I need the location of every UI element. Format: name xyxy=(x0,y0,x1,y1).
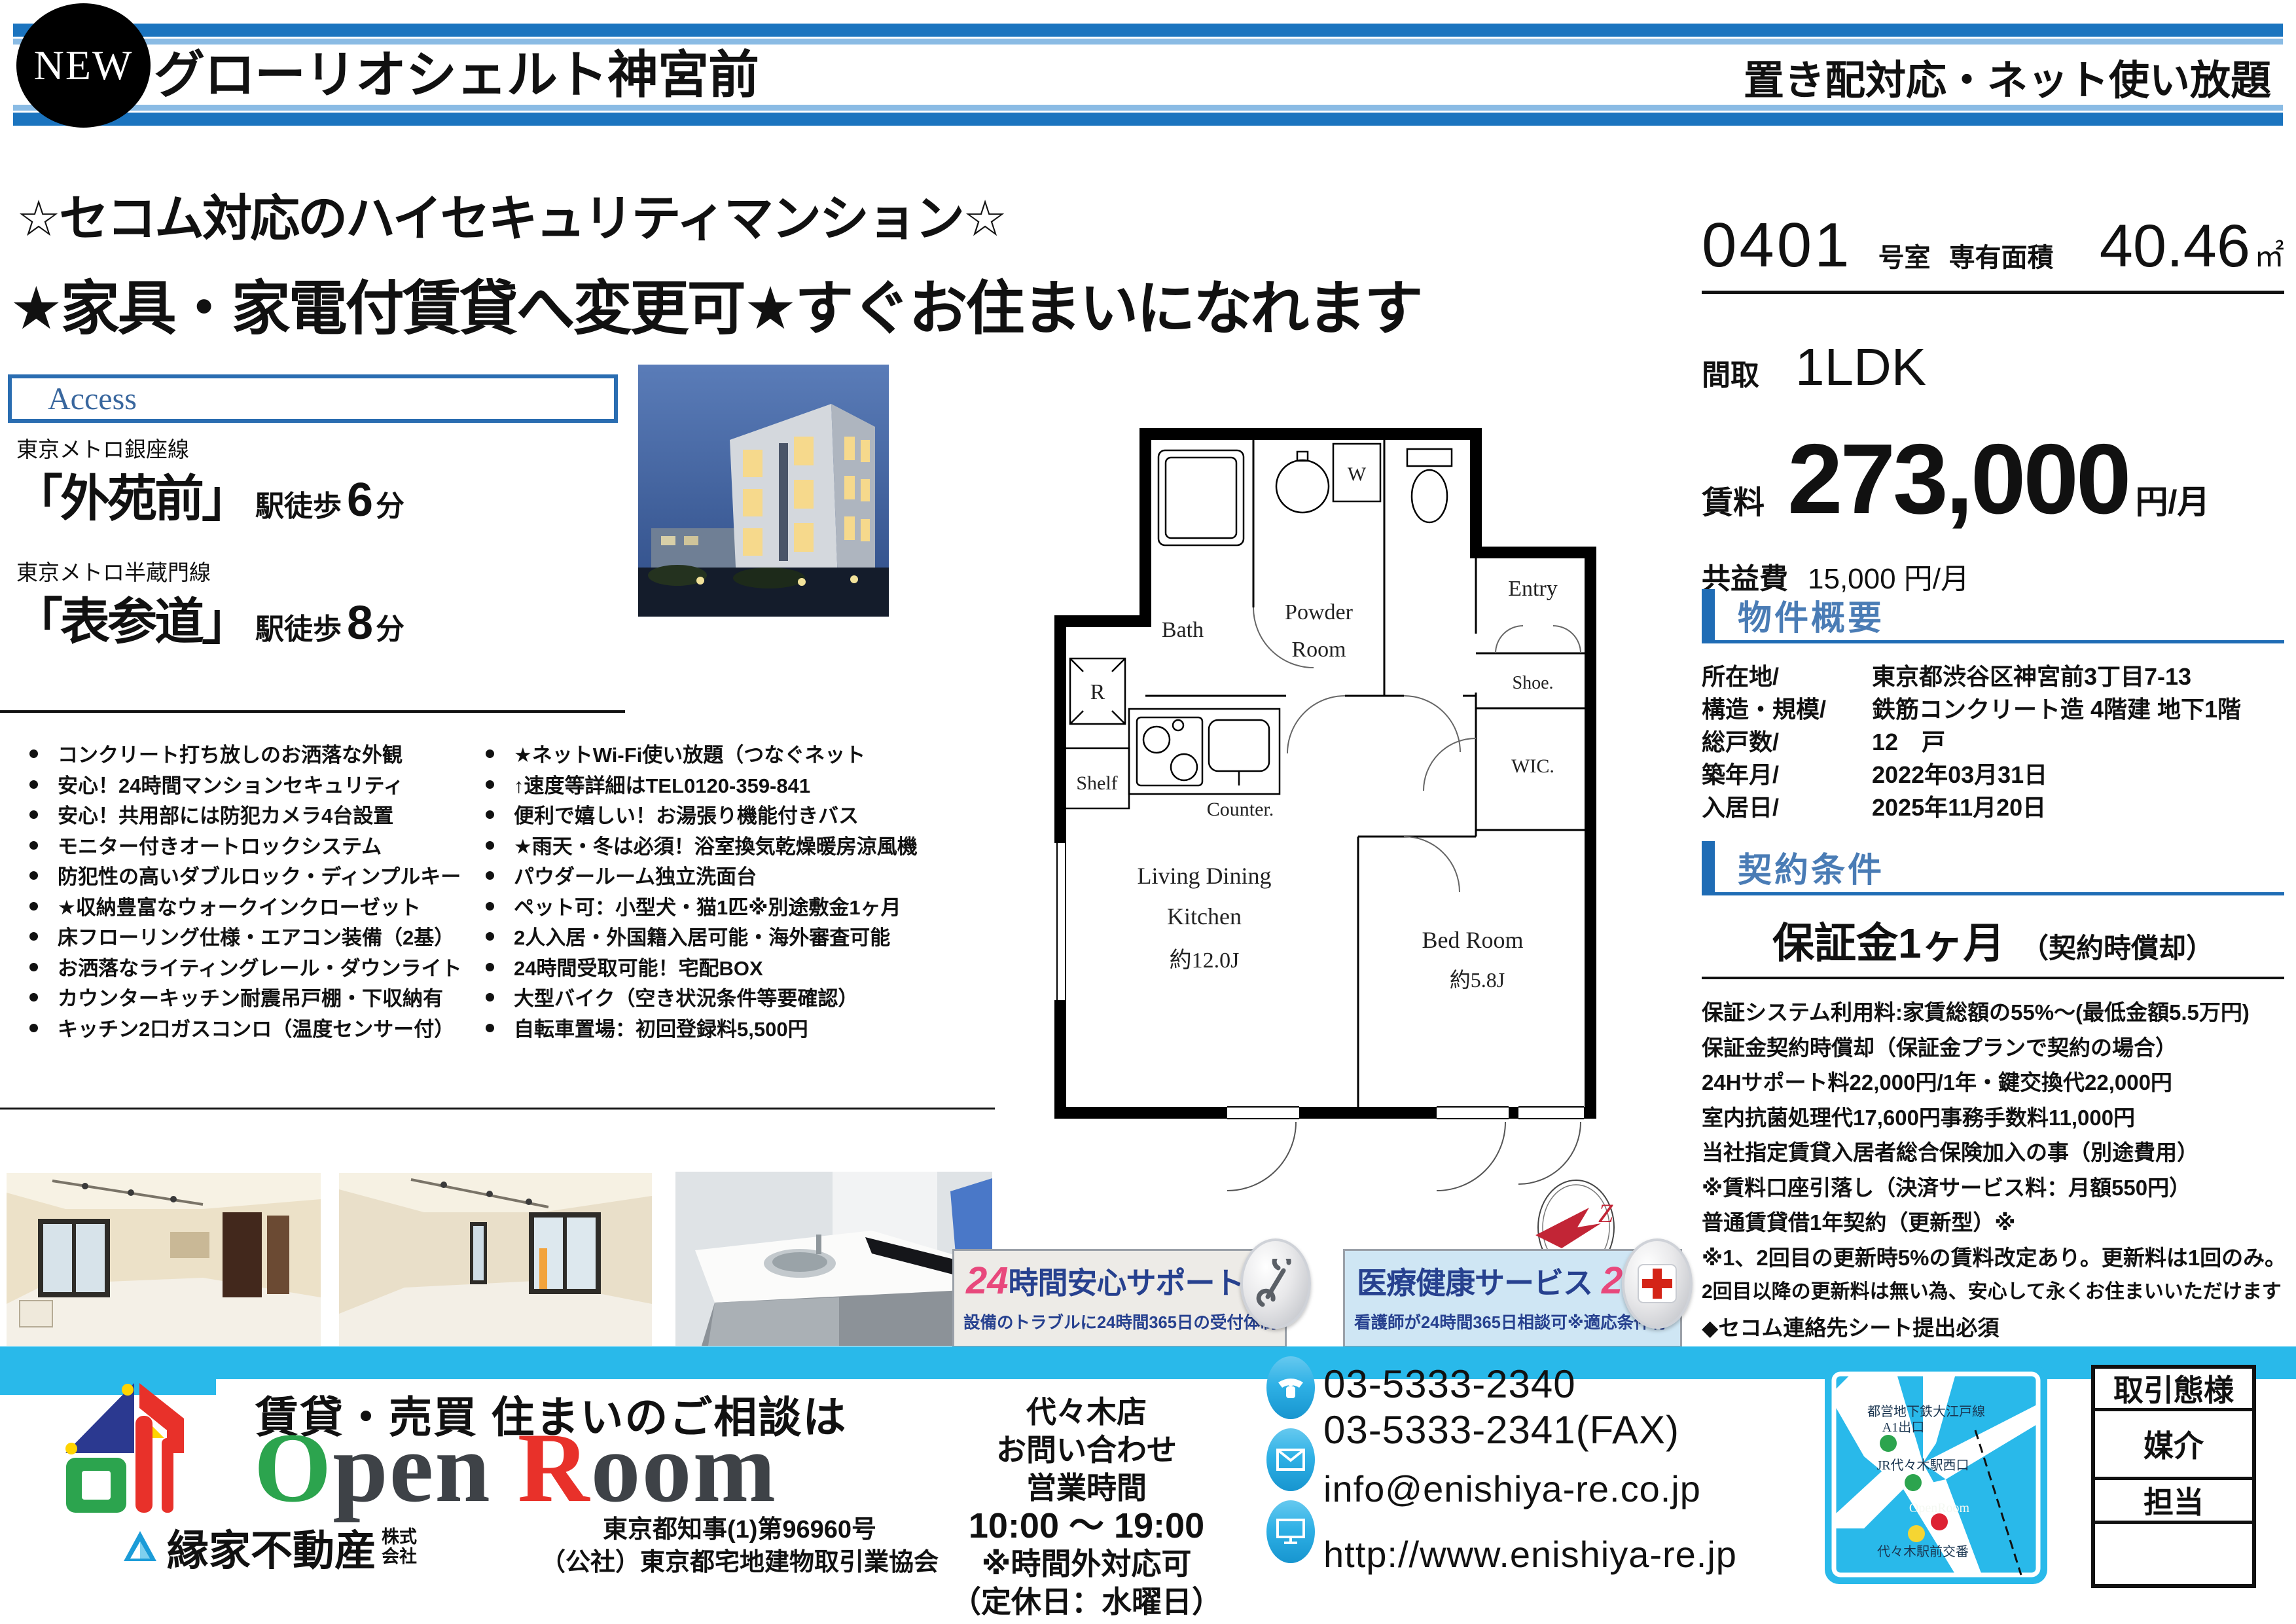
photo-kitchen xyxy=(675,1172,992,1346)
overview-row: 入居日/2025年11月20日 xyxy=(1702,789,2284,821)
company-logo-icon xyxy=(121,1528,159,1566)
map-label-oedo-line: 都営地下鉄大江戸線 xyxy=(1867,1404,1985,1419)
unit-number-row: 0401 号室 専有面積 40.46 ㎡ xyxy=(1702,209,2284,294)
website-icon xyxy=(1266,1500,1315,1563)
photo-living-room xyxy=(7,1173,321,1346)
feature-item: ↑速度等詳細はTEL0120-359-841 xyxy=(486,769,918,800)
brand-oom: oom xyxy=(591,1413,778,1523)
rent-unit: 円/月 xyxy=(2135,476,2210,523)
feature-item: カウンターキッチン耐震吊戸棚・下収納有 xyxy=(29,982,462,1013)
overview-value: 2025年11月20日 xyxy=(1872,789,2046,823)
feature-item: 防犯性の高いダブルロック・ディンプルキー xyxy=(29,860,462,891)
header-stripe-bottom xyxy=(13,105,2283,126)
map-label-jr-yoyogi: JR代々木駅西口 xyxy=(1876,1458,1969,1473)
station1-unit: 分 xyxy=(376,482,404,524)
room-label-counter: Counter. xyxy=(1207,799,1274,820)
red-cross-icon xyxy=(1622,1238,1693,1329)
support-banner-subtext: 設備のトラブルに24時間365日の受付体制 xyxy=(954,1303,1285,1333)
station1-row: 「外苑前」 駅徒歩 6 分 xyxy=(13,458,404,530)
photo-bedroom xyxy=(339,1173,652,1346)
contract-term: 当社指定賃貸入居者総合保険加入の事（別途費用） xyxy=(1702,1135,2291,1170)
email-icon xyxy=(1266,1428,1315,1491)
access-title: Access xyxy=(12,381,137,417)
contract-term: 2回目以降の更新料は無い為、安心して永くお住まいいただけます xyxy=(1702,1275,2291,1310)
company-suffix-1: 株式 xyxy=(382,1527,417,1547)
map-label-openroom: OpenRoom xyxy=(1909,1501,1970,1515)
feature-item: パウダールーム独立洗面台 xyxy=(486,860,918,891)
branch-name: 代々木店 xyxy=(916,1393,1257,1431)
hours-value: 10:00 ～ 19:00 xyxy=(916,1507,1257,1545)
license-block: 東京都知事(1)第96960号 （公社）東京都宅地建物取引業協会 xyxy=(537,1513,942,1579)
contract-term: 保証金契約時償却（保証金プランで契約の場合） xyxy=(1702,1030,2291,1066)
layout-row: 間取 1LDK xyxy=(1702,337,1926,397)
overview-rows: 所在地/東京都渋谷区神宮前3丁目7-13 構造・規模/鉄筋コンクリート造 4階建… xyxy=(1702,658,2284,821)
feature-item: モニター付きオートロックシステム xyxy=(29,830,462,861)
contract-term: ※賃料口座引落し（決済サービス料：月額550円） xyxy=(1702,1170,2291,1206)
room-label-shelf: Shelf xyxy=(1076,772,1117,794)
hours-note: ※時間外対応可 xyxy=(916,1545,1257,1583)
email-address[interactable]: info@enishiya-re.co.jp xyxy=(1323,1468,1701,1510)
room-label-bed-size: 約5.8J xyxy=(1450,968,1505,992)
brand-pen: pen xyxy=(332,1413,518,1523)
fax-number: 03-5333-2341(FAX) xyxy=(1323,1407,1679,1453)
medical-banner-title: 医療健康サービス xyxy=(1357,1259,1592,1303)
overview-label: 総戸数/ xyxy=(1702,723,1872,757)
feature-list-left: コンクリート打ち放しのお洒落な外観 安心！24時間マンションセキュリティ 安心！… xyxy=(29,738,462,1043)
catch-copy-line1: ☆セコム対応のハイセキュリティマンション☆ xyxy=(16,178,1005,250)
trade-header: 取引態様 xyxy=(2095,1369,2252,1411)
room-label-powder1: Powder xyxy=(1285,600,1354,624)
overview-row: 所在地/東京都渋谷区神宮前3丁目7-13 xyxy=(1702,658,2284,691)
map-label-koban: 代々木駅前交番 xyxy=(1877,1544,1969,1559)
divider-under-access xyxy=(0,710,625,713)
contract-term: ◆セコム連絡先シート提出必須 xyxy=(1702,1310,2291,1346)
area-label: 専有面積 xyxy=(1949,236,2054,274)
overview-value: 2022年03月31日 xyxy=(1872,756,2047,790)
station2-row: 「表参道」 駅徒歩 8 分 xyxy=(13,581,404,653)
room-label-ldk1: Living Dining xyxy=(1138,863,1272,889)
feature-item: 2人入居・外国籍入居可能・海外審査可能 xyxy=(486,921,918,952)
contract-term: 室内抗菌処理代17,600円事務手数料11,000円 xyxy=(1702,1100,2291,1136)
hours-label: 営業時間 xyxy=(916,1469,1257,1507)
website-url[interactable]: http://www.enishiya-re.jp xyxy=(1323,1533,1737,1576)
room-label-wic: WIC. xyxy=(1511,755,1554,777)
branch-contact-label: お問い合わせ xyxy=(916,1431,1257,1469)
station2-name: 「表参道」 xyxy=(13,581,249,653)
layout-label: 間取 xyxy=(1702,352,1759,393)
overview-row: 総戸数/12 戸 xyxy=(1702,723,2284,756)
station1-minutes: 6 xyxy=(347,473,373,527)
feature-item: ★雨天・冬は必須！浴室換気乾燥暖房涼風機 xyxy=(486,830,918,861)
feature-item: コンクリート打ち放しのお洒落な外観 xyxy=(29,738,462,769)
trade-table: 取引態様 媒介 担当 xyxy=(2091,1365,2256,1588)
access-header: Access xyxy=(8,374,618,423)
openroom-house-logo xyxy=(56,1378,226,1515)
overview-value: 12 戸 xyxy=(1872,723,1945,757)
room-number: 0401 xyxy=(1702,209,1852,281)
overview-label: 入居日/ xyxy=(1702,789,1872,823)
feature-item: 安心！24時間マンションセキュリティ xyxy=(29,769,462,800)
overview-label: 所在地/ xyxy=(1702,658,1872,692)
room-label-washer: W xyxy=(1348,463,1367,485)
room-label-bath: Bath xyxy=(1162,618,1204,642)
section-accent-bar xyxy=(1702,841,1715,892)
svg-text:Z: Z xyxy=(1598,1199,1613,1228)
divider-under-features xyxy=(0,1108,995,1110)
room-label-ldk-size: 約12.0J xyxy=(1170,948,1240,973)
rent-value: 273,000 xyxy=(1787,422,2128,537)
trade-type: 媒介 xyxy=(2095,1411,2252,1480)
wrench-icon xyxy=(1240,1238,1311,1329)
feature-item: 床フローリング仕様・エアコン装備（2基） xyxy=(29,921,462,952)
holiday-note: （定休日：水曜日） xyxy=(916,1583,1257,1621)
license-association: （公社）東京都宅地建物取引業協会 xyxy=(537,1546,942,1579)
feature-item: キッチン2口ガスコンロ（温度センサー付） xyxy=(29,1013,462,1043)
brand-letter-r: R xyxy=(518,1413,591,1523)
deposit-row: 保証金1ヶ月 （契約時償却） xyxy=(1702,910,2284,970)
feature-item: 便利で嬉しい！お湯張り機能付きバス xyxy=(486,799,918,830)
company-suffix: 株式 会社 xyxy=(382,1528,417,1566)
room-number-label: 号室 xyxy=(1878,236,1931,274)
contract-section-header: 契約条件 xyxy=(1702,841,2284,895)
area-value: 40.46 xyxy=(2100,212,2250,281)
map-label-a1-exit: A1出口 xyxy=(1882,1420,1924,1435)
rent-row: 賃料 273,000 円/月 xyxy=(1702,422,2284,537)
overview-title: 物件概要 xyxy=(1738,590,1884,640)
area-unit: ㎡ xyxy=(2254,232,2284,276)
feature-item: 24時間受取可能！宅配BOX xyxy=(486,952,918,983)
section-accent-bar xyxy=(1702,589,1715,640)
contract-term: 普通賃貸借1年契約（更新型）※ xyxy=(1702,1205,2291,1240)
support-banner-title: 時間安心サポート xyxy=(1009,1259,1244,1303)
station2-walk: 駅徒歩 xyxy=(255,605,342,647)
property-flyer: NEW グローリオシェルト神宮前 置き配対応・ネット使い放題 ☆セコム対応のハイ… xyxy=(0,0,2296,1624)
branch-contact-block: 代々木店 お問い合わせ 営業時間 10:00 ～ 19:00 ※時間外対応可 （… xyxy=(916,1393,1257,1621)
company-suffix-2: 会社 xyxy=(382,1547,417,1566)
contract-term: 保証システム利用料:家賃総額の55%～(最低金額5.5万円) xyxy=(1702,995,2291,1030)
feature-list-right: ★ネットWi-Fi使い放題（つなぐネット ↑速度等詳細はTEL0120-359-… xyxy=(486,738,918,1043)
trade-agent-label: 担当 xyxy=(2095,1480,2252,1524)
feature-item: ペット可：小型犬・猫1匹※別途敷金1ヶ月 xyxy=(486,891,918,922)
feature-item: ★ネットWi-Fi使い放題（つなぐネット xyxy=(486,738,918,769)
room-label-powder2: Room xyxy=(1291,638,1346,662)
overview-row: 構造・規模/鉄筋コンクリート造 4階建 地下1階 xyxy=(1702,691,2284,723)
station1-walk: 駅徒歩 xyxy=(255,482,342,524)
building-title: グローリオシェルト神宮前 xyxy=(154,34,759,107)
openroom-wordmark: Open Room xyxy=(254,1418,777,1517)
room-label-bed: Bed Room xyxy=(1422,927,1523,953)
building-photo xyxy=(638,365,889,617)
location-map: 都営地下鉄大江戸線 A1出口 JR代々木駅西口 OpenRoom 代々木駅前交番 xyxy=(1825,1365,2047,1584)
station1-name: 「外苑前」 xyxy=(13,458,249,530)
floor-plan: Bath Powder Room W Entry Shoe. WIC. R Sh… xyxy=(1037,411,1613,1197)
overview-label: 築年月/ xyxy=(1702,756,1872,790)
phone-number: 03-5333-2340 xyxy=(1323,1362,1576,1407)
rent-label: 賃料 xyxy=(1702,477,1765,522)
feature-item: 安心！共用部には防犯カメラ4台設置 xyxy=(29,799,462,830)
overview-label: 構造・規模/ xyxy=(1702,691,1872,725)
feature-item: お洒落なライティングレール・ダウンライト xyxy=(29,952,462,983)
overview-section-header: 物件概要 xyxy=(1702,589,2284,643)
room-label-shoe: Shoe. xyxy=(1513,673,1554,693)
station2-minutes: 8 xyxy=(347,596,373,650)
deposit-value: 保証金1ヶ月 xyxy=(1772,920,2005,967)
contract-term: ※1、2回目の更新時5%の賃料改定あり。更新料は1回のみ。 xyxy=(1702,1240,2291,1276)
license-number: 東京都知事(1)第96960号 xyxy=(537,1513,942,1546)
new-badge: NEW xyxy=(16,3,151,128)
contract-term: 24Hサポート料22,000円/1年・鍵交換代22,000円 xyxy=(1702,1065,2291,1100)
station2-unit: 分 xyxy=(376,605,404,647)
brand-letter-o: O xyxy=(254,1413,332,1523)
contract-title: 契約条件 xyxy=(1738,842,1884,892)
overview-value: 鉄筋コンクリート造 4階建 地下1階 xyxy=(1872,691,2241,725)
divider-under-deposit xyxy=(1702,977,2284,979)
company-row: 縁家不動産 株式 会社 xyxy=(121,1517,417,1578)
trade-agent-blank xyxy=(2095,1524,2252,1584)
phone-icon xyxy=(1266,1356,1315,1419)
feature-item: 自転車置場：初回登録料5,500円 xyxy=(486,1013,918,1043)
overview-row: 築年月/2022年03月31日 xyxy=(1702,756,2284,789)
room-label-refrigerator: R xyxy=(1090,680,1105,704)
room-label-entry: Entry xyxy=(1508,577,1558,601)
header-tagline: 置き配対応・ネット使い放題 xyxy=(1604,47,2271,106)
overview-value: 東京都渋谷区神宮前3丁目7-13 xyxy=(1872,658,2191,692)
feature-item: 大型バイク（空き状況条件等要確認） xyxy=(486,982,918,1013)
layout-value: 1LDK xyxy=(1795,337,1926,397)
company-name: 縁家不動産 xyxy=(167,1517,376,1578)
contract-terms: 保証システム利用料:家賃総額の55%～(最低金額5.5万円) 保証金契約時償却（… xyxy=(1702,995,2291,1345)
support-banner: 24 時間安心サポート 設備のトラブルに24時間365日の受付体制 xyxy=(952,1249,1287,1348)
support-banner-24: 24 xyxy=(966,1259,1009,1303)
catch-copy-line2: ★家具・家電付賃貸へ変更可★すぐお住まいになれます xyxy=(10,261,1421,346)
deposit-note: （契約時償却） xyxy=(2021,933,2214,964)
new-badge-label: NEW xyxy=(34,41,134,90)
room-label-ldk2: Kitchen xyxy=(1167,903,1242,929)
feature-item: ★収納豊富なウォークインクローゼット xyxy=(29,891,462,922)
